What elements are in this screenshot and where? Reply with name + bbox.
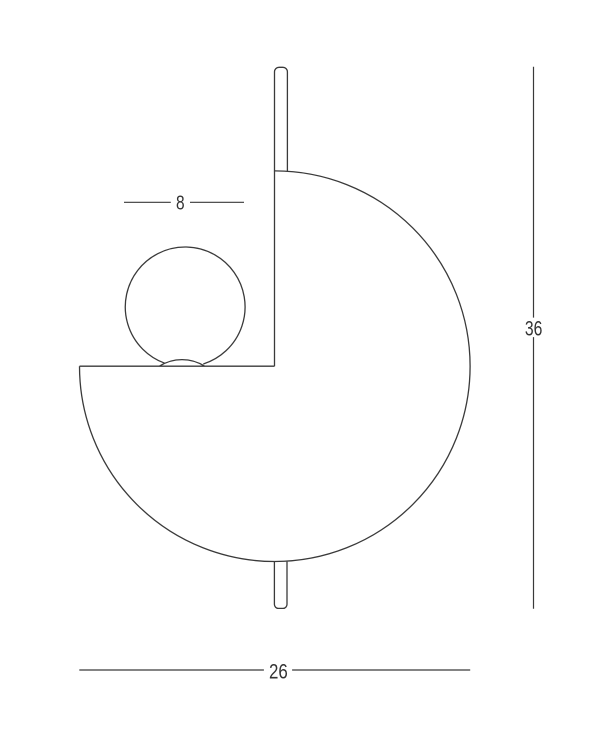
svg-text:36: 36 xyxy=(525,316,543,340)
svg-text:26: 26 xyxy=(269,660,288,684)
svg-text:8: 8 xyxy=(176,191,185,214)
